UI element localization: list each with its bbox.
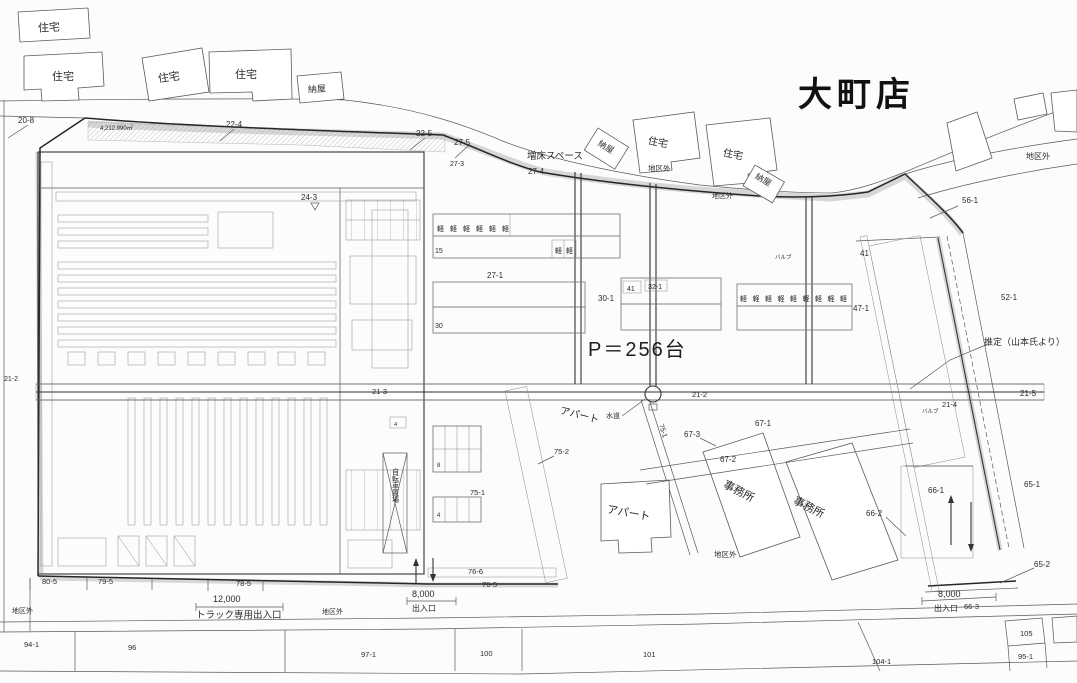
parcel-20-8: 20-8 [18, 116, 35, 125]
apartment-label-1: アパート [559, 405, 601, 426]
loading-docks [58, 536, 195, 566]
parcel-41-b: 41 [860, 249, 869, 258]
parcel-22-5: 22-5 [416, 129, 433, 138]
stall-count-8: 8 [437, 463, 441, 469]
parcel-67-3: 67-3 [684, 430, 701, 439]
parcel-21-3-road: 21-3 [372, 387, 387, 396]
dim-truck-gate: 12,000 [213, 594, 241, 604]
parcel-100: 100 [480, 649, 493, 658]
expansion-space-label: 増床スペース [527, 150, 583, 162]
water-supply-label: 水道 [606, 411, 620, 420]
parcel-27-5: 27-5 [454, 138, 471, 147]
valve-label-1: バルブ [775, 253, 792, 261]
parcel-80-5: 80-5 [42, 577, 57, 586]
parcel-22-4: 22-4 [226, 120, 243, 129]
neighbor-buildings [18, 8, 1077, 580]
parcel-27-4: 27-4 [528, 167, 545, 176]
kei-stall-row-6: 軽軽軽軽軽軽 [437, 224, 515, 233]
store-gondolas [128, 398, 327, 525]
site-plan-drawing: 大町店 住宅 住宅 住宅 住宅 納屋 納屋 住宅 住宅 納屋 事務所 事務所 ア… [0, 0, 1077, 683]
house-label-2: 住宅 [52, 69, 74, 83]
parcel-66-3: 66-3 [964, 602, 979, 611]
stall-count-15: 15 [435, 248, 443, 255]
parcel-75-1: 75-1 [470, 488, 485, 497]
parking-capacity-label: P＝256台 [588, 338, 687, 361]
district-outside-1: 地区外 [648, 163, 671, 173]
parcel-66-1: 66-1 [928, 486, 945, 495]
parcel-78-5: 78-5 [236, 579, 251, 588]
parcel-41-a: 41 [627, 286, 635, 293]
parcel-24-3: 24-3 [301, 193, 318, 202]
district-outside-2: 地区外 [712, 191, 733, 200]
labels: 大町店 住宅 住宅 住宅 住宅 納屋 納屋 住宅 住宅 納屋 事務所 事務所 ア… [4, 20, 1065, 666]
district-outside-6: 地区外 [714, 549, 737, 559]
parcel-79-5: 79-5 [98, 577, 113, 586]
house-label-4: 住宅 [235, 67, 257, 81]
parcel-104-1: 104-1 [872, 657, 891, 666]
district-outside-5: 地区外 [322, 607, 343, 616]
parcel-56-1: 56-1 [962, 196, 979, 205]
parcel-97-1: 97-1 [361, 650, 376, 659]
parcel-47-1: 47-1 [853, 304, 870, 313]
parcel-21-4: 21-4 [942, 400, 957, 409]
parcel-96: 96 [128, 643, 136, 652]
parcel-76-6: 76-6 [468, 567, 483, 576]
dim-gate-left: 8,000 [412, 589, 435, 599]
water-valve-box [649, 404, 657, 410]
page-title: 大町店 [798, 76, 915, 114]
parcel-27-3: 27-3 [450, 161, 464, 168]
gate-label-left: 出入口 [412, 603, 436, 613]
district-outside-3: 地区外 [1026, 151, 1050, 161]
estimate-note-label: 推定（山本氏より） [984, 336, 1065, 347]
parcel-21-2-west: 21-2 [4, 376, 18, 383]
house-label-1: 住宅 [38, 20, 61, 35]
parcel-30-1: 30-1 [598, 294, 615, 303]
stall-count-30: 30 [435, 323, 443, 330]
truck-gate-label: トラック専用出入口 [196, 609, 282, 621]
top-road [0, 99, 1077, 632]
parcel-101: 101 [643, 650, 656, 659]
stall-count-4b: 4 [394, 422, 397, 428]
parcel-65-2: 65-2 [1034, 560, 1051, 569]
parcel-32-1: 32-1 [648, 284, 662, 291]
parcel-21-2-road: 21-2 [692, 390, 707, 399]
parcel-75-1-strip: 75-1 [657, 423, 668, 439]
parcel-76-5: 76-5 [482, 580, 497, 589]
parcel-105: 105 [1020, 629, 1033, 638]
parcel-67-1: 67-1 [755, 419, 772, 428]
valve-label-2: バルブ [922, 407, 939, 415]
parcel-65-1: 65-1 [1024, 480, 1041, 489]
barn-label-1: 納屋 [308, 82, 327, 94]
kei-stall-row-9: 軽軽軽軽軽軽軽軽軽 [740, 294, 853, 303]
parcel-75-2: 75-2 [554, 447, 569, 456]
parcel-21-5: 21-5 [1020, 389, 1037, 398]
site-area-label: 4,212.990㎡ [100, 124, 133, 132]
stall-count-4a: 4 [437, 513, 441, 519]
water-manhole [645, 386, 661, 402]
checkout-counters [68, 352, 325, 365]
bottom-road-and-parcel-band [0, 604, 1077, 674]
bicycle-parking-label: 自転車置場 [392, 467, 400, 504]
parcel-52-1: 52-1 [1001, 293, 1018, 302]
kei-stall-row-2: 軽軽 [555, 246, 577, 255]
site-plan-page: 大町店 住宅 住宅 住宅 住宅 納屋 納屋 住宅 住宅 納屋 事務所 事務所 ア… [0, 0, 1077, 683]
parcel-94-1: 94-1 [24, 640, 39, 649]
parcel-27-1: 27-1 [487, 271, 504, 280]
parcel-95-1: 95-1 [1018, 652, 1033, 661]
parcel-67-2: 67-2 [720, 455, 737, 464]
gate-label-right: 出入口 [934, 603, 958, 613]
district-outside-4: 地区外 [12, 606, 33, 615]
store-shelving-rows [58, 215, 336, 347]
parcel-66-2: 66-2 [866, 509, 883, 518]
dim-gate-right: 8,000 [938, 589, 961, 599]
store-building [38, 152, 424, 574]
